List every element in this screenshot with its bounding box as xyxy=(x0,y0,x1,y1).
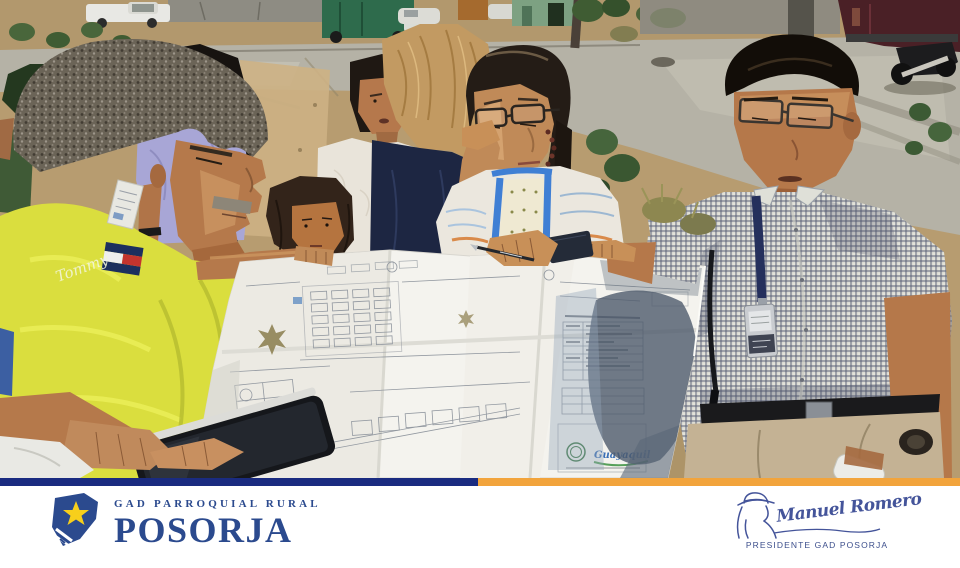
divider-stripe xyxy=(0,478,960,486)
gad-posorja-logo: GAD PARROQUIAL RURAL POSORJA xyxy=(48,491,321,555)
lanyard xyxy=(756,196,762,302)
president-title: PRESIDENTE GAD POSORJA xyxy=(732,540,902,550)
white-hatchback-car xyxy=(398,8,440,24)
tommy-hilfiger-flag-logo xyxy=(102,242,144,276)
brand-tagline: GAD PARROQUIAL RURAL xyxy=(114,498,321,510)
president-signature-block: Manuel Romero PRESIDENTE GAD POSORJA xyxy=(732,486,902,550)
orange-box-truck xyxy=(458,0,488,20)
wristwatch xyxy=(899,429,933,455)
signature-flourish xyxy=(772,526,882,536)
page: Tommy xyxy=(0,0,960,568)
stripe-amber-segment xyxy=(478,478,960,486)
footer-banner: GAD PARROQUIAL RURAL POSORJA Manuel Rome… xyxy=(0,478,960,568)
brand-name: POSORJA xyxy=(114,512,321,548)
signature-text: Manuel Romero xyxy=(775,489,922,527)
stripe-navy-segment xyxy=(0,478,478,486)
id-badge xyxy=(744,304,778,358)
posorja-shield-icon xyxy=(48,491,104,555)
photo-scene: Tommy xyxy=(0,0,960,478)
green-building xyxy=(512,0,576,26)
